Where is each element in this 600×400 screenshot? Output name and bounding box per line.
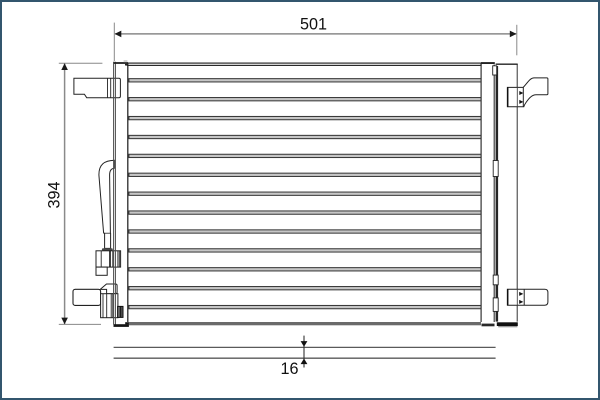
svg-text:16: 16 (280, 360, 298, 378)
svg-text:394: 394 (45, 181, 63, 208)
svg-text:501: 501 (300, 16, 327, 34)
